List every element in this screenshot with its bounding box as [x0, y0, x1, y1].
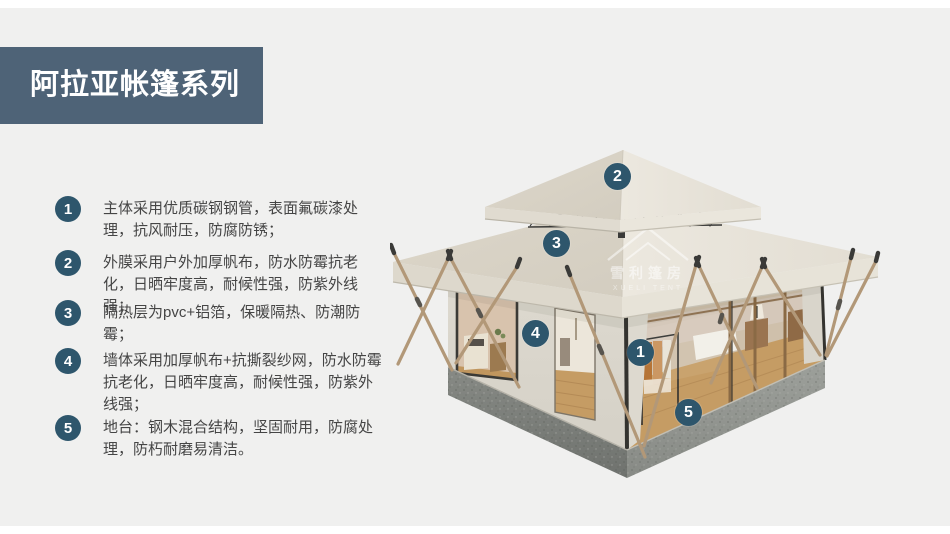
feature-number-badge: 1	[55, 196, 81, 222]
tent-upper-roof	[485, 150, 761, 232]
page-title: 阿拉亚帐篷系列	[30, 71, 240, 100]
feature-text: 隔热层为pvc+铝箔，保暖隔热、防潮防霉；	[103, 302, 385, 346]
tent-callout-1: 1	[627, 339, 654, 366]
tent-callout-3: 3	[543, 230, 570, 257]
feature-number-badge: 5	[55, 415, 81, 441]
tent-illustration: 雪利篷房 XUELI TENT	[390, 140, 910, 500]
feature-item-5: 5 地台：钢木混合结构，坚固耐用，防腐处理，防朽耐磨易清洁。	[55, 417, 385, 461]
tent-callout-2: 2	[604, 163, 631, 190]
feature-text: 地台：钢木混合结构，坚固耐用，防腐处理，防朽耐磨易清洁。	[103, 417, 385, 461]
tent-callout-4: 4	[522, 320, 549, 347]
feature-number-badge: 4	[55, 348, 81, 374]
feature-item-3: 3 隔热层为pvc+铝箔，保暖隔热、防潮防霉；	[55, 302, 385, 346]
watermark-text-en: XUELI TENT	[613, 285, 683, 292]
slide: 阿拉亚帐篷系列 1 主体采用优质碳钢钢管，表面氟碳漆处理，抗风耐压，防腐防锈； …	[0, 0, 950, 534]
bottom-margin-strip	[0, 526, 950, 534]
feature-item-1: 1 主体采用优质碳钢钢管，表面氟碳漆处理，抗风耐压，防腐防锈；	[55, 198, 385, 242]
feature-number-badge: 3	[55, 300, 81, 326]
title-banner: 阿拉亚帐篷系列	[0, 47, 263, 124]
tent-callout-5: 5	[675, 399, 702, 426]
feature-item-4: 4 墙体采用加厚帆布+抗撕裂纱网，防水防霉抗老化，日晒牢度高，耐候性强，防紫外线…	[55, 350, 385, 416]
feature-text: 主体采用优质碳钢钢管，表面氟碳漆处理，抗风耐压，防腐防锈；	[103, 198, 385, 242]
top-margin-strip	[0, 0, 950, 8]
feature-number-badge: 2	[55, 250, 81, 276]
feature-text: 墙体采用加厚帆布+抗撕裂纱网，防水防霉抗老化，日晒牢度高，耐候性强，防紫外线强；	[103, 350, 385, 416]
watermark-text-cn: 雪利篷房	[610, 265, 686, 281]
